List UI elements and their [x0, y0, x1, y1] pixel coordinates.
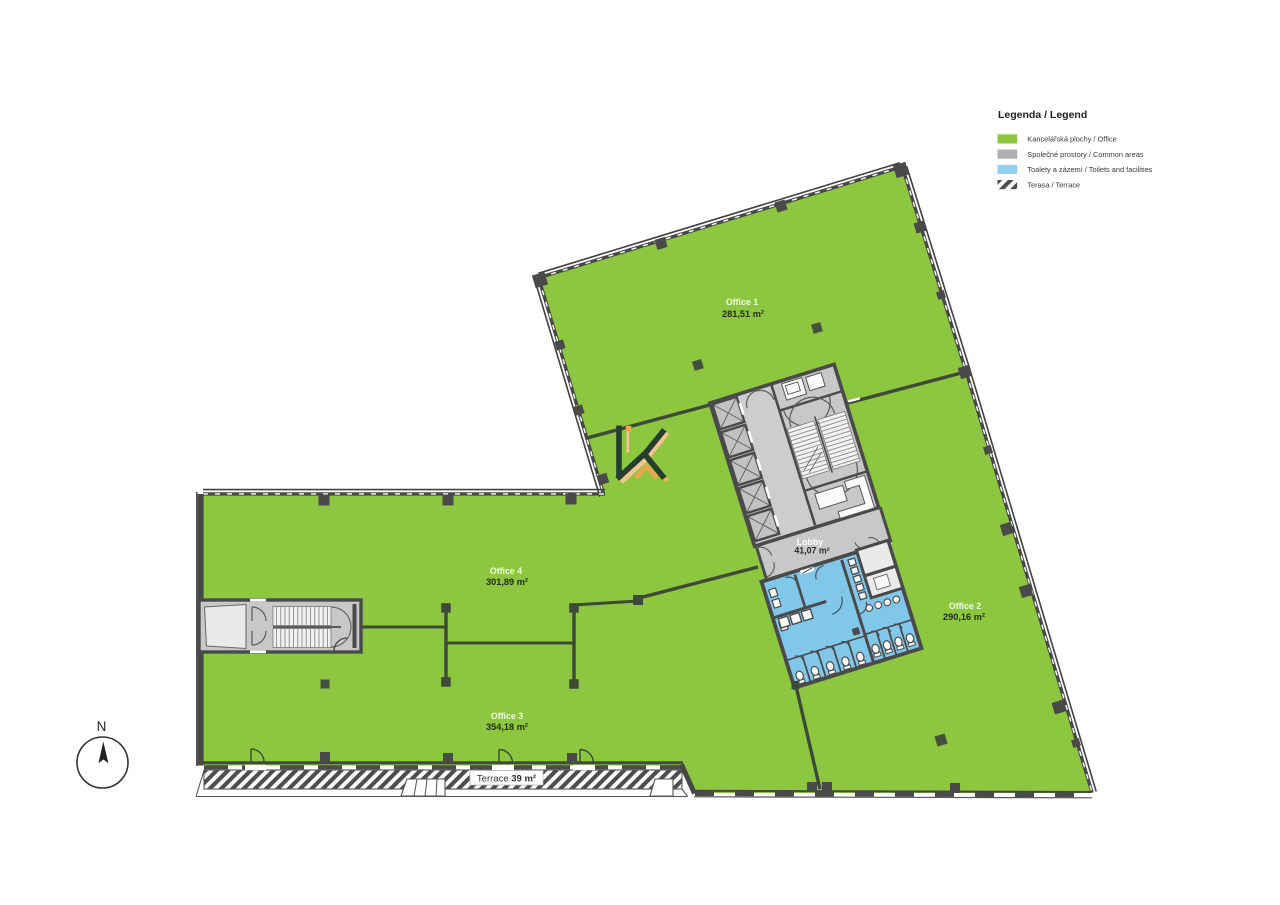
svg-text:Office 3: Office 3	[491, 711, 523, 721]
svg-text:301,89 m²: 301,89 m²	[486, 577, 528, 587]
svg-text:Office 1: Office 1	[726, 297, 758, 307]
svg-text:41,07 m²: 41,07 m²	[794, 546, 829, 556]
svg-text:Společné prostory / Common are: Společné prostory / Common areas	[1027, 150, 1144, 159]
svg-text:Terrace 39 m²: Terrace 39 m²	[477, 774, 536, 785]
svg-text:Kancelářská plochy / Office: Kancelářská plochy / Office	[1027, 135, 1116, 144]
svg-text:Office 4: Office 4	[490, 566, 522, 576]
svg-text:290,16 m²: 290,16 m²	[943, 612, 985, 622]
svg-text:Legenda / Legend: Legenda / Legend	[998, 109, 1087, 121]
svg-text:281,51 m²: 281,51 m²	[722, 309, 764, 319]
svg-text:Toalety a zázemí / Toilets and: Toalety a zázemí / Toilets and facilitie…	[1027, 165, 1152, 174]
svg-text:354,18 m²: 354,18 m²	[486, 722, 528, 732]
svg-text:Terasa / Terrace: Terasa / Terrace	[1027, 180, 1080, 189]
svg-text:N: N	[97, 719, 107, 734]
svg-text:Office 2: Office 2	[949, 601, 981, 611]
